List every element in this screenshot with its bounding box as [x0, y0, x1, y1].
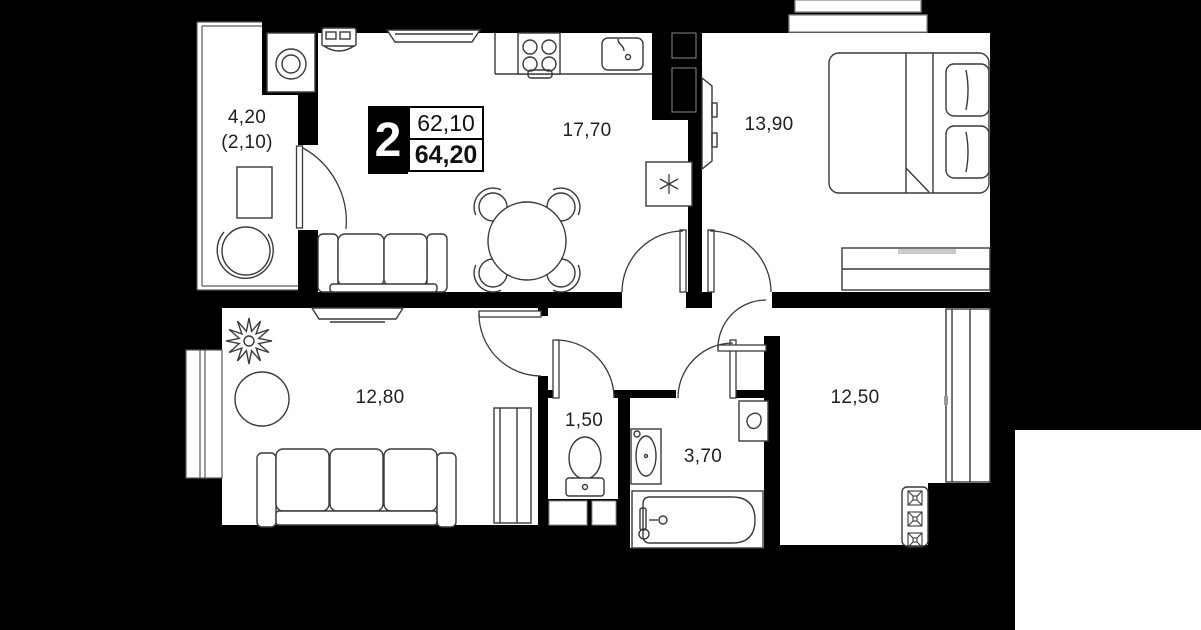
label-balcony-area: 4,20: [228, 107, 266, 129]
dining-table: [488, 202, 566, 280]
duct: [592, 501, 616, 525]
window-living-glass: [186, 350, 222, 478]
area-badge: 2 62,10 64,20: [368, 106, 484, 174]
living-area-value: 62,10: [408, 106, 484, 140]
living-wardrobe: [494, 408, 531, 523]
living-sofa: [257, 449, 456, 527]
page-corner: [1015, 430, 1201, 630]
sink-icon: [602, 38, 643, 70]
coffee-table: [235, 372, 289, 426]
parapet: [789, 0, 927, 32]
balcony-table: [237, 167, 272, 218]
fridge-icon: [646, 162, 692, 206]
rooms-count: 2: [368, 106, 408, 174]
floor-plan-drawing: [0, 0, 1201, 630]
bench-stools: [902, 487, 928, 547]
label-hall-room-area: 12,50: [830, 387, 879, 409]
duct: [549, 501, 587, 525]
stove-icon: [518, 33, 560, 78]
label-living-area: 12,80: [355, 387, 404, 409]
kitchen-tv-icon: [387, 30, 480, 42]
label-bathroom-area: 3,70: [684, 446, 722, 468]
bathtub-icon: [632, 491, 763, 548]
label-balcony-area-secondary: (2,10): [221, 132, 272, 154]
bath-shelf: [739, 401, 768, 441]
label-bedroom-area: 13,90: [744, 114, 793, 136]
bath-sink-icon: [631, 429, 661, 484]
dresser: [842, 248, 990, 290]
total-area-value: 64,20: [408, 138, 484, 172]
bed-icon: [829, 53, 989, 193]
kitchen-sofa: [318, 234, 447, 292]
washing-machine-icon: [267, 33, 315, 92]
label-kitchen-area: 17,70: [562, 120, 611, 142]
label-wc-area: 1,50: [565, 410, 603, 432]
hall-wardrobe: [944, 309, 990, 482]
floor-plan: 4,20 (2,10) 17,70 13,90 12,80 1,50 3,70 …: [0, 0, 1201, 630]
toilet-icon: [566, 437, 604, 496]
